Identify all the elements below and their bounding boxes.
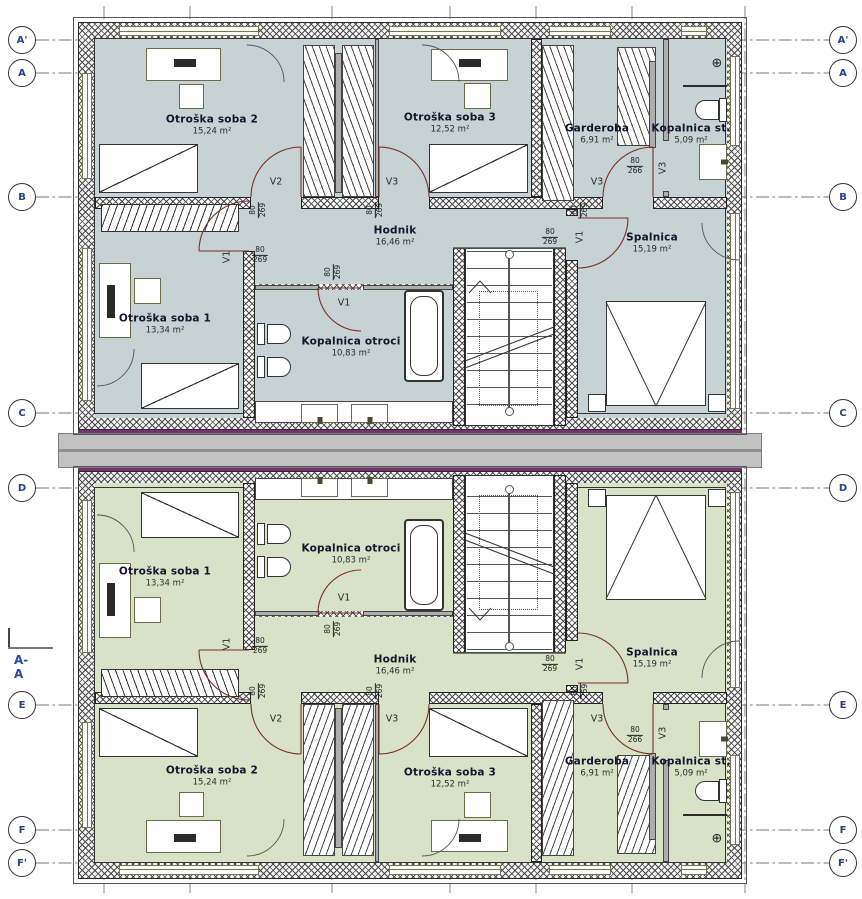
- grid-bubble-right: A: [829, 59, 857, 87]
- fan-icon: ⊕: [709, 57, 725, 71]
- section-label: A-A: [14, 653, 28, 681]
- window: [681, 865, 707, 875]
- chair: [464, 83, 491, 109]
- sink: [351, 478, 388, 497]
- room-name: Otroška soba 2: [166, 765, 258, 777]
- door-opening: [379, 197, 429, 209]
- door-tag-v1: V1: [222, 638, 233, 651]
- door-tag-v2: V2: [270, 714, 283, 725]
- wall: [566, 260, 578, 418]
- dim-w: 80: [366, 686, 375, 696]
- grid-letter: E: [840, 700, 847, 711]
- dim-w: 80: [630, 726, 640, 735]
- dim-h: 266: [627, 166, 643, 176]
- door-dim: 80269: [571, 683, 589, 699]
- wall: [653, 197, 727, 209]
- monitor: [107, 285, 115, 318]
- rail-post: [505, 642, 514, 651]
- room-name: Otroška soba 3: [404, 112, 496, 124]
- door-dim: 80269: [366, 683, 384, 699]
- wardrobe: [342, 45, 374, 197]
- room-area: 10,83 m²: [301, 349, 400, 359]
- grid-letter: A: [839, 68, 847, 79]
- wall: [653, 692, 727, 704]
- room-area: 15,19 m²: [626, 245, 678, 255]
- bed: [141, 492, 239, 538]
- grid-bubble-left: D: [8, 474, 36, 502]
- room-area: 12,52 m²: [404, 125, 496, 135]
- wall-stairwell: [554, 248, 566, 426]
- door-tag-v1: V1: [222, 251, 233, 264]
- room-label: Spalnica15,19 m²: [626, 232, 678, 255]
- section-line: [8, 647, 53, 649]
- grid-bubble-left: A': [8, 26, 36, 54]
- window: [389, 865, 501, 875]
- dim-h: 269: [333, 264, 343, 280]
- dim-h: 269: [252, 255, 268, 265]
- bathtub: [404, 519, 444, 611]
- dim-w: 80: [324, 624, 333, 634]
- door-opening: [603, 692, 653, 704]
- toilet-tank: [257, 523, 265, 545]
- dim-h: 266: [627, 735, 643, 745]
- room-label: Otroška soba 215,24 m²: [166, 765, 258, 788]
- room-name: Spalnica: [626, 647, 678, 659]
- door-dim: 80269: [366, 202, 384, 218]
- toilet-bowl: [695, 100, 719, 120]
- dim-w: 80: [255, 637, 265, 646]
- grid-letter: B: [839, 192, 847, 203]
- toilet-bowl: [267, 357, 291, 377]
- toilet-tank: [257, 556, 265, 578]
- wardrobe: [303, 45, 335, 197]
- toilet-bowl: [267, 524, 291, 544]
- toilet-bowl: [695, 781, 719, 801]
- partition: [255, 611, 319, 616]
- partition: [363, 611, 453, 616]
- bathtub-inner: [410, 296, 438, 376]
- room-area: 6,91 m²: [565, 136, 629, 146]
- shower-screen: [683, 814, 727, 816]
- grid-letter: F': [17, 858, 27, 869]
- bed: [429, 144, 528, 193]
- closet-rail: [101, 204, 239, 232]
- door-tag-v1: V1: [575, 658, 586, 671]
- door-dim: 80269: [324, 621, 342, 637]
- party-wall-core: [59, 449, 761, 452]
- dim-h: 269: [375, 683, 385, 699]
- door-dim: 80269: [571, 202, 589, 218]
- section-tick: [8, 628, 10, 648]
- sink: [351, 404, 388, 423]
- nightstand: [588, 394, 606, 412]
- wall: [531, 704, 542, 862]
- room-name: Kopalnica otroci: [301, 336, 400, 348]
- toilet-tank: [257, 356, 265, 378]
- partition: [663, 191, 669, 197]
- wall: [531, 39, 542, 197]
- window: [82, 722, 92, 828]
- window: [82, 248, 92, 401]
- door-opening: [379, 692, 429, 704]
- grid-bubble-left: B: [8, 183, 36, 211]
- window: [82, 73, 92, 179]
- room-area: 15,24 m²: [166, 127, 258, 137]
- bathtub-inner: [410, 525, 438, 605]
- window: [82, 500, 92, 653]
- room-label: Hodnik16,46 m²: [374, 225, 417, 248]
- room-label: Kopalnica otroci10,83 m²: [301, 336, 400, 359]
- room-name: Garderoba: [565, 123, 629, 135]
- grid-bubble-left: E: [8, 691, 36, 719]
- grid-letter: F: [840, 825, 847, 836]
- door-dim: 80269: [252, 637, 268, 655]
- grid-bubble-right: D: [829, 474, 857, 502]
- room-name: Kopalnica st.: [651, 756, 730, 768]
- sink: [301, 478, 338, 497]
- dim-w: 80: [545, 655, 555, 664]
- room-label: Otroška soba 113,34 m²: [119, 566, 211, 589]
- door-tag-v3: V3: [386, 714, 399, 725]
- bed: [429, 708, 528, 757]
- grid-bubble-right: F': [829, 849, 857, 877]
- grid-letter: A: [18, 68, 26, 79]
- room-name: Otroška soba 2: [166, 114, 258, 126]
- window: [119, 865, 259, 875]
- room-label: Otroška soba 312,52 m²: [404, 767, 496, 790]
- grid-letter: A': [838, 35, 849, 46]
- party-wall-gap: [58, 433, 762, 468]
- grid-letter: C: [839, 408, 846, 419]
- dim-h: 269: [580, 202, 590, 218]
- dim-h: 269: [542, 237, 558, 247]
- toilet-tank: [257, 323, 265, 345]
- room-name: Otroška soba 3: [404, 767, 496, 779]
- grid-bubble-right: C: [829, 399, 857, 427]
- door-tag-v2: V2: [270, 177, 283, 188]
- window: [730, 492, 740, 688]
- dim-w: 80: [255, 246, 265, 255]
- shower-screen: [683, 85, 727, 87]
- door-dim: 80269: [249, 683, 267, 699]
- nightstand: [588, 489, 606, 507]
- double-bed: [606, 495, 706, 600]
- monitor: [459, 834, 481, 842]
- wardrobe: [342, 704, 374, 856]
- dim-w: 80: [249, 686, 258, 696]
- window: [681, 26, 707, 36]
- wall: [243, 251, 255, 418]
- wardrobe: [303, 704, 335, 856]
- room-name: Otroška soba 1: [119, 313, 211, 325]
- room-label: Hodnik16,46 m²: [374, 654, 417, 677]
- door-tag-v3: V3: [591, 177, 604, 188]
- rail-post: [505, 250, 514, 259]
- wall-stairwell: [453, 475, 465, 653]
- room-area: 13,34 m²: [119, 326, 211, 336]
- room-area: 15,19 m²: [626, 660, 678, 670]
- grid-letter: E: [19, 700, 26, 711]
- headroom-line: [479, 495, 538, 610]
- room-label: Kopalnica otroci10,83 m²: [301, 543, 400, 566]
- room-name: Otroška soba 1: [119, 566, 211, 578]
- rail-post: [505, 485, 514, 494]
- room-area: 5,09 m²: [651, 769, 730, 779]
- toilet-bowl: [267, 557, 291, 577]
- headroom-line: [479, 291, 538, 406]
- fan-icon: ⊕: [709, 830, 725, 844]
- room-label: Otroška soba 312,52 m²: [404, 112, 496, 135]
- monitor: [174, 59, 196, 67]
- monitor: [459, 59, 481, 67]
- door-dim: 80269: [542, 655, 558, 673]
- grid-bubble-right: F: [829, 816, 857, 844]
- dim-w: 80: [571, 686, 580, 696]
- sink: [301, 404, 338, 423]
- room-label: Spalnica15,19 m²: [626, 647, 678, 670]
- room-label: Kopalnica st.5,09 m²: [651, 756, 730, 779]
- dim-h: 269: [258, 683, 268, 699]
- room-area: 10,83 m²: [301, 556, 400, 566]
- grid-letter: F': [838, 858, 848, 869]
- room-name: Kopalnica st.: [651, 123, 730, 135]
- grid-bubble-right: E: [829, 691, 857, 719]
- sink: [699, 144, 727, 180]
- dim-w: 80: [366, 205, 375, 215]
- room-label: Garderoba6,91 m²: [565, 123, 629, 146]
- window: [549, 26, 611, 36]
- room-area: 13,34 m²: [119, 579, 211, 589]
- grid-letter: A': [17, 35, 28, 46]
- room-label: Kopalnica st.5,09 m²: [651, 123, 730, 146]
- door-tag-v1: V1: [575, 231, 586, 244]
- monitor: [174, 834, 196, 842]
- chair: [179, 84, 204, 109]
- wall: [566, 483, 578, 641]
- dim-h: 269: [542, 664, 558, 674]
- room-label: Otroška soba 215,24 m²: [166, 114, 258, 137]
- window: [389, 26, 501, 36]
- grid-letter: D: [839, 483, 847, 494]
- window: [730, 56, 740, 146]
- wardrobe-divider: [335, 708, 342, 848]
- bathtub: [404, 290, 444, 382]
- window: [730, 213, 740, 409]
- chair: [134, 597, 161, 623]
- sink: [699, 721, 727, 757]
- grid-letter: D: [18, 483, 26, 494]
- room-name: Spalnica: [626, 232, 678, 244]
- door-tag-v1: V1: [338, 298, 351, 309]
- grid-letter: C: [18, 408, 25, 419]
- door-dim: 80269: [324, 264, 342, 280]
- room-name: Kopalnica otroci: [301, 543, 400, 555]
- wall-stairwell: [554, 475, 566, 653]
- door-tag-v3: V3: [658, 727, 669, 740]
- grid-bubble-right: B: [829, 183, 857, 211]
- door-dim: 80269: [542, 228, 558, 246]
- dim-h: 269: [375, 202, 385, 218]
- room-name: Garderoba: [565, 756, 629, 768]
- room-label: Garderoba6,91 m²: [565, 756, 629, 779]
- door-tag-v3: V3: [386, 177, 399, 188]
- dim-h: 269: [252, 646, 268, 656]
- double-bed: [606, 301, 706, 406]
- door-tag-v3: V3: [591, 714, 604, 725]
- bed: [141, 363, 239, 409]
- bed: [99, 144, 198, 193]
- floor-plan: ⊕: [0, 0, 862, 899]
- room-name: Hodnik: [374, 225, 417, 237]
- door-dim: 80269: [252, 246, 268, 264]
- door-opening: [603, 197, 653, 209]
- dim-w: 80: [571, 205, 580, 215]
- window: [119, 26, 259, 36]
- window: [730, 755, 740, 845]
- toilet-bowl: [267, 324, 291, 344]
- dim-h: 269: [580, 683, 590, 699]
- partition: [375, 704, 379, 862]
- room-area: 6,91 m²: [565, 769, 629, 779]
- nightstand: [708, 394, 726, 412]
- toilet-tank: [719, 98, 727, 122]
- room-area: 16,46 m²: [374, 238, 417, 248]
- rail-post: [505, 407, 514, 416]
- wardrobe-divider: [335, 53, 342, 193]
- chair: [179, 792, 204, 817]
- room-area: 5,09 m²: [651, 136, 730, 146]
- monitor: [107, 583, 115, 616]
- nightstand: [708, 489, 726, 507]
- room-area: 16,46 m²: [374, 667, 417, 677]
- closet-rail: [101, 669, 239, 697]
- room-area: 12,52 m²: [404, 780, 496, 790]
- wall: [243, 483, 255, 650]
- room-area: 15,24 m²: [166, 778, 258, 788]
- dim-w: 80: [630, 157, 640, 166]
- grid-letter: F: [19, 825, 26, 836]
- dim-w: 80: [249, 205, 258, 215]
- chair: [464, 792, 491, 818]
- grid-bubble-right: A': [829, 26, 857, 54]
- dim-w: 80: [545, 228, 555, 237]
- dim-w: 80: [324, 267, 333, 277]
- partition: [375, 39, 379, 197]
- partition: [663, 704, 669, 710]
- toilet-tank: [719, 779, 727, 803]
- bed: [99, 708, 198, 757]
- grid-bubble-left: F': [8, 849, 36, 877]
- grid-bubble-left: C: [8, 399, 36, 427]
- room-label: Otroška soba 113,34 m²: [119, 313, 211, 336]
- grid-letter: B: [18, 192, 26, 203]
- dim-h: 269: [258, 202, 268, 218]
- door-tag-v3: V3: [658, 162, 669, 175]
- partition: [255, 285, 319, 290]
- door-dim: 80269: [249, 202, 267, 218]
- wall-stairwell: [453, 248, 465, 426]
- room-name: Hodnik: [374, 654, 417, 666]
- door-dim: 80266: [627, 726, 643, 744]
- door-tag-v1: V1: [338, 593, 351, 604]
- grid-bubble-left: A: [8, 59, 36, 87]
- door-dim: 80266: [627, 157, 643, 175]
- chair: [134, 278, 161, 304]
- window: [549, 865, 611, 875]
- grid-bubble-left: F: [8, 816, 36, 844]
- dim-h: 269: [333, 621, 343, 637]
